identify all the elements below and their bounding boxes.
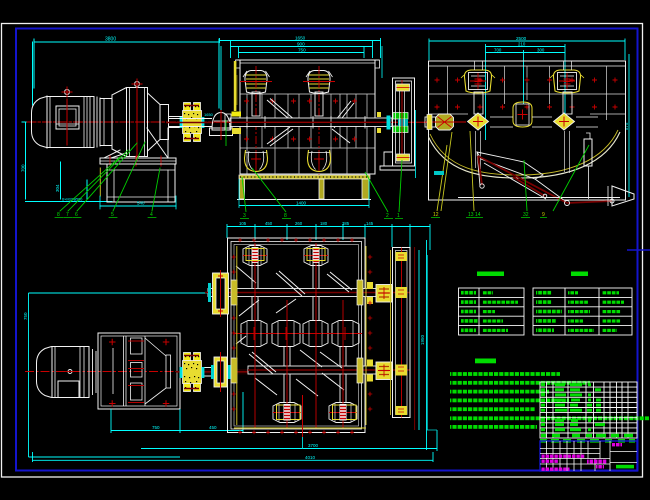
svg-text:300: 300 — [537, 48, 545, 53]
svg-text:3700: 3700 — [308, 443, 319, 448]
svg-text:1650: 1650 — [204, 112, 214, 117]
svg-text:2: 2 — [386, 213, 389, 219]
svg-text:450: 450 — [265, 221, 273, 226]
svg-text:8: 8 — [284, 213, 287, 219]
svg-text:3: 3 — [243, 213, 246, 219]
svg-text:7: 7 — [66, 212, 69, 218]
svg-text:105: 105 — [239, 221, 247, 226]
svg-text:304: 304 — [55, 184, 60, 192]
svg-text:180: 180 — [320, 221, 328, 226]
svg-text:1400: 1400 — [296, 201, 307, 206]
svg-text:575: 575 — [624, 122, 629, 130]
svg-text:3800: 3800 — [105, 37, 116, 43]
svg-text:4010: 4010 — [305, 455, 316, 460]
svg-text:450: 450 — [209, 425, 217, 430]
svg-text:8: 8 — [57, 212, 60, 218]
svg-text:700: 700 — [494, 48, 502, 53]
svg-text:12: 12 — [433, 212, 439, 218]
svg-text:900: 900 — [297, 42, 305, 47]
svg-text:1650: 1650 — [295, 36, 306, 41]
svg-text:700: 700 — [21, 164, 26, 172]
svg-text:260: 260 — [295, 221, 303, 226]
svg-text:385: 385 — [342, 221, 350, 226]
svg-text:5: 5 — [111, 212, 114, 218]
svg-text:32: 32 — [523, 212, 529, 218]
svg-text:145: 145 — [366, 221, 374, 226]
svg-text:750: 750 — [298, 48, 306, 53]
svg-text:4: 4 — [150, 212, 153, 218]
svg-text:1950: 1950 — [420, 334, 425, 345]
svg-text:540: 540 — [137, 201, 145, 206]
svg-text:1: 1 — [397, 213, 400, 219]
svg-text:13 14: 13 14 — [468, 212, 481, 218]
svg-text:6: 6 — [75, 212, 78, 218]
svg-text:750: 750 — [152, 425, 160, 430]
svg-text:2500: 2500 — [516, 36, 527, 41]
svg-text:210: 210 — [518, 42, 526, 47]
svg-text:750: 750 — [23, 312, 28, 320]
svg-text:9: 9 — [542, 212, 545, 218]
